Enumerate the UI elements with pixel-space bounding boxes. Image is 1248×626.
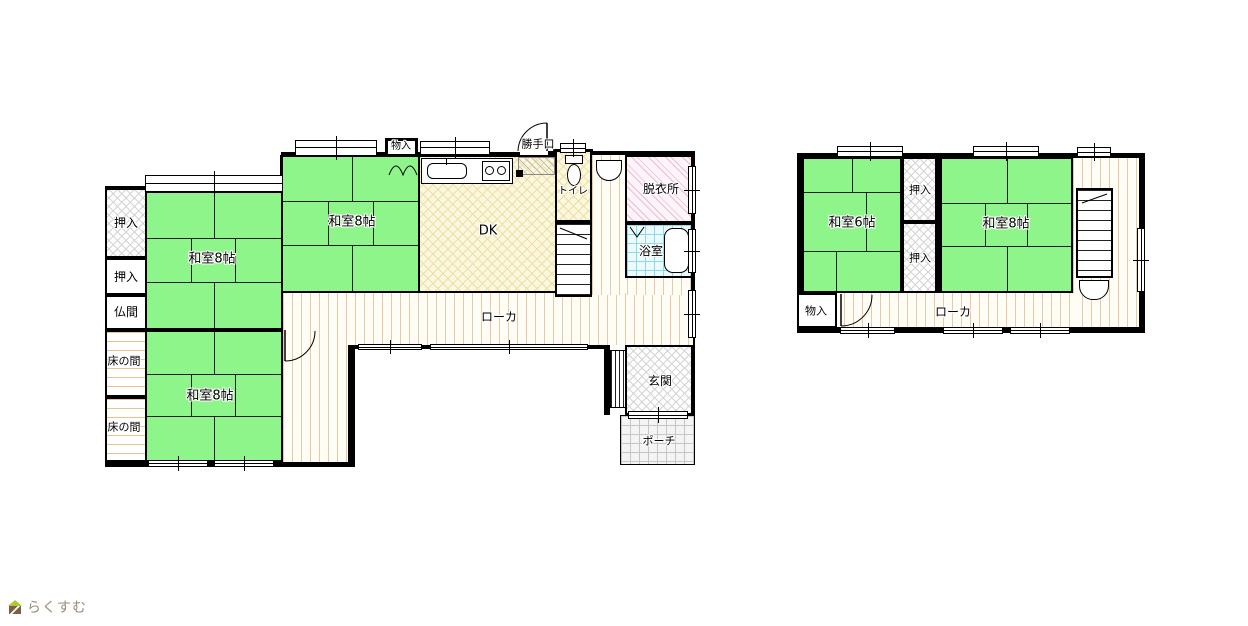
room-label-porch: ポーチ bbox=[643, 436, 676, 447]
room-label-monoire-2f: 物入 bbox=[805, 306, 827, 317]
katteguchi-doormat bbox=[518, 157, 555, 175]
window bbox=[560, 143, 586, 153]
stairs-direction-line bbox=[1079, 191, 1113, 217]
window bbox=[295, 140, 377, 156]
window bbox=[145, 175, 283, 192]
window bbox=[1077, 147, 1111, 157]
room-label-tokonoma-2: 床の間 bbox=[108, 422, 141, 433]
toilet-bowl-icon bbox=[567, 164, 581, 186]
corridor-right bbox=[627, 278, 691, 295]
entrance-sliding-door bbox=[628, 411, 688, 419]
rakusumu-logo: らくすむ bbox=[8, 597, 87, 617]
window bbox=[1010, 327, 1070, 334]
window bbox=[688, 290, 696, 338]
room-label-washitsu-8: 和室8帖 bbox=[982, 218, 1029, 231]
floorplan-canvas: 押入 押入 仏間 床の間 床の間 和室8帖 和室8帖 和室8帖 物入 DK 勝手… bbox=[0, 0, 1248, 626]
room-label-tokonoma-1: 床の間 bbox=[108, 356, 141, 367]
door-arc bbox=[840, 294, 874, 329]
corridor-label-roka-f2: ローカ bbox=[935, 306, 971, 318]
stove-burner-icon bbox=[485, 166, 494, 175]
kitchen-sink-icon bbox=[427, 163, 467, 179]
window bbox=[358, 344, 422, 350]
room-label-oshiire-1: 押入 bbox=[114, 217, 138, 229]
logo-text: らくすむ bbox=[27, 597, 87, 617]
doorstep-mark bbox=[516, 170, 523, 177]
window bbox=[420, 141, 490, 155]
door-label-katteguchi: 勝手口 bbox=[522, 139, 555, 150]
house-logo-icon bbox=[8, 600, 23, 615]
window bbox=[214, 460, 274, 467]
room-label-washitsu-sw: 和室8帖 bbox=[186, 390, 233, 403]
window bbox=[837, 146, 903, 157]
wall bbox=[348, 343, 355, 467]
window bbox=[943, 327, 1003, 334]
window bbox=[688, 166, 696, 214]
door-arc bbox=[284, 330, 316, 363]
faucet-icon bbox=[446, 159, 447, 165]
room-label-washitsu-6: 和室6帖 bbox=[828, 217, 875, 230]
window bbox=[688, 229, 696, 273]
bath-door-icon bbox=[629, 226, 645, 239]
shoe-cabinet bbox=[610, 350, 626, 408]
corridor-label-roka-f1: ローカ bbox=[481, 311, 517, 323]
stairs-direction-line bbox=[557, 225, 591, 255]
room-label-oshiire-2f-top: 押入 bbox=[909, 185, 931, 196]
window bbox=[148, 460, 208, 467]
toilet-tank-icon bbox=[565, 155, 583, 164]
room-label-butsuma: 仏間 bbox=[114, 306, 138, 318]
room-label-yokushitsu: 浴室 bbox=[639, 245, 663, 257]
room-label-dk: DK bbox=[479, 225, 498, 238]
window bbox=[1137, 228, 1145, 292]
room-label-oshiire-2f-bottom: 押入 bbox=[909, 253, 931, 264]
room-label-genkan: 玄関 bbox=[648, 375, 672, 387]
window bbox=[430, 344, 588, 350]
closet-fold-door-arc bbox=[388, 157, 418, 177]
room-label-washitsu-n: 和室8帖 bbox=[328, 216, 375, 229]
room-label-oshiire-2: 押入 bbox=[114, 271, 138, 283]
room-label-monoire-f1: 物入 bbox=[391, 142, 411, 152]
stove-burner-icon bbox=[497, 166, 506, 175]
room-label-washitsu-nw: 和室8帖 bbox=[188, 253, 235, 266]
room-label-toilet: トイレ bbox=[558, 187, 588, 197]
room-label-datsuijo: 脱衣所 bbox=[643, 183, 679, 195]
window bbox=[973, 146, 1039, 157]
